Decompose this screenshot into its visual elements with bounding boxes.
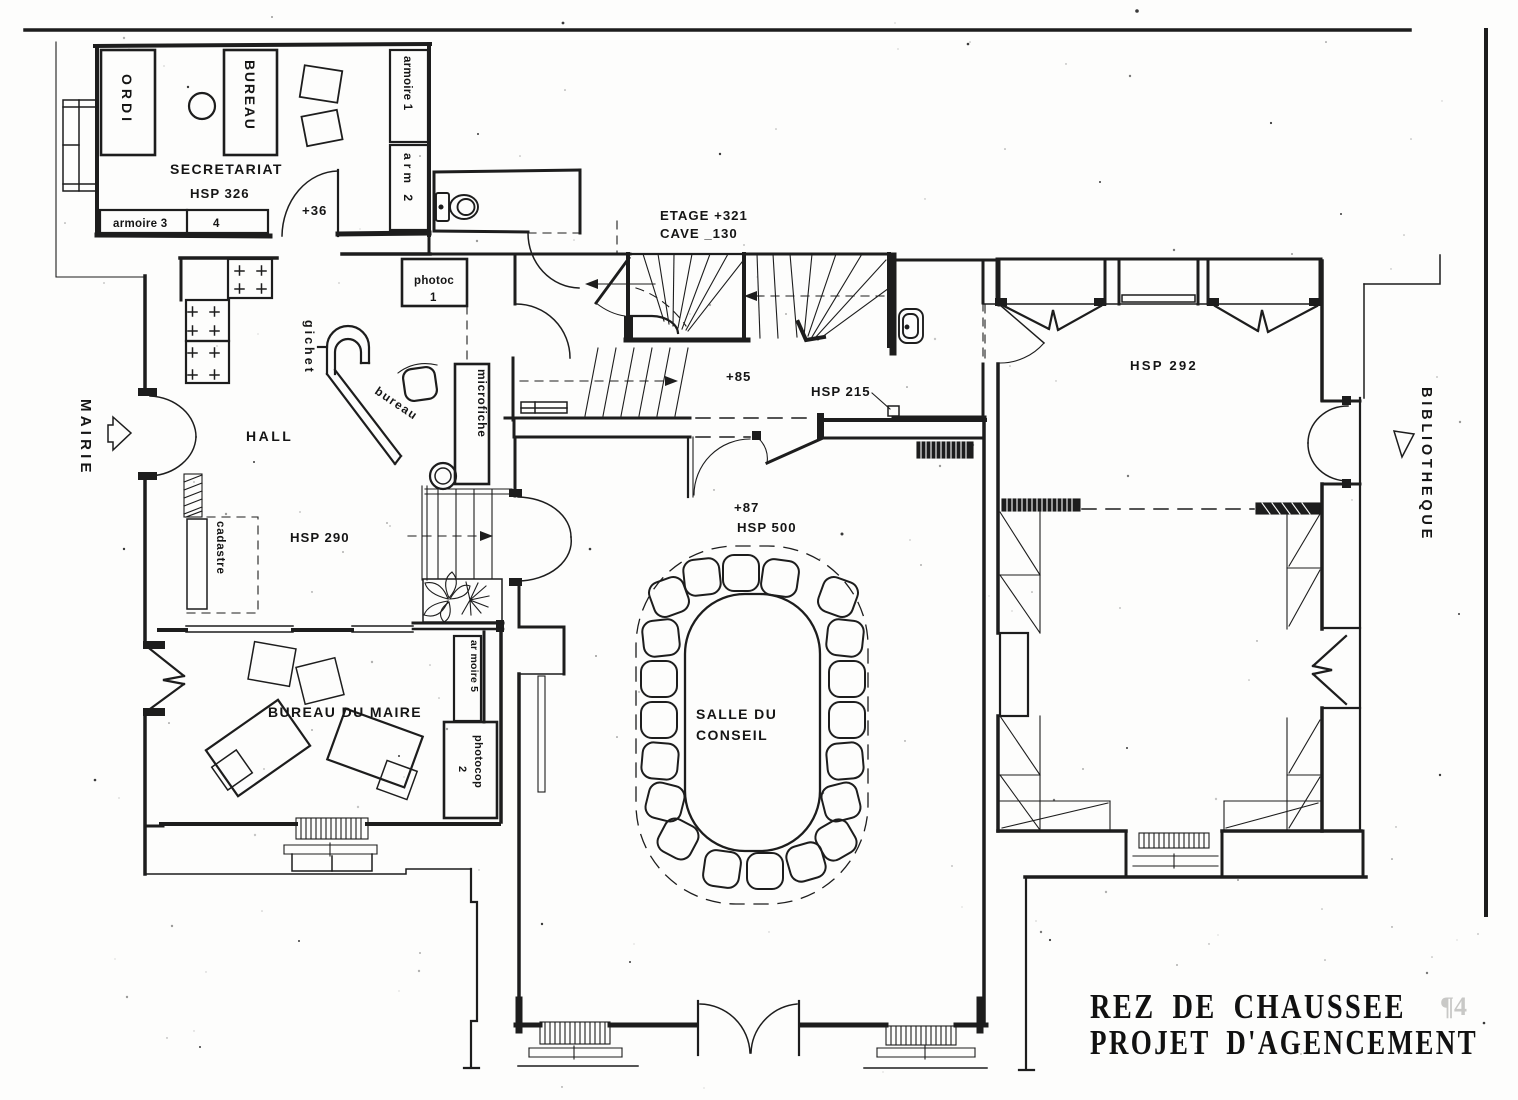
svg-text:2: 2 xyxy=(456,766,468,772)
svg-text:CONSEIL: CONSEIL xyxy=(696,727,768,743)
svg-text:4: 4 xyxy=(213,218,220,230)
svg-text:BIBLIOTHEQUE: BIBLIOTHEQUE xyxy=(1418,387,1434,542)
svg-text:HSP 292: HSP 292 xyxy=(1130,358,1198,373)
svg-text:HSP 500: HSP 500 xyxy=(737,520,797,535)
svg-text:gichet: gichet xyxy=(302,320,316,375)
svg-text:+36: +36 xyxy=(302,203,327,218)
svg-text:HSP 326: HSP 326 xyxy=(190,186,250,201)
svg-text:REZ DE CHAUSSEE: REZ DE CHAUSSEE xyxy=(1090,987,1406,1026)
svg-text:PROJET D'AGENCEMENT: PROJET D'AGENCEMENT xyxy=(1090,1023,1478,1062)
svg-text:HSP 215: HSP 215 xyxy=(811,384,871,399)
svg-text:ar moire 5: ar moire 5 xyxy=(468,640,480,692)
svg-text:1: 1 xyxy=(430,292,437,304)
svg-text:cadastre: cadastre xyxy=(214,521,226,575)
svg-text:+85: +85 xyxy=(726,369,751,384)
svg-text:MAIRIE: MAIRIE xyxy=(77,399,94,477)
svg-text:CAVE _130: CAVE _130 xyxy=(660,226,738,241)
svg-text:SECRETARIAT: SECRETARIAT xyxy=(170,161,283,177)
svg-text:HSP 290: HSP 290 xyxy=(290,530,350,545)
svg-text:¶4: ¶4 xyxy=(1440,992,1467,1021)
svg-text:microfiche: microfiche xyxy=(475,369,489,438)
svg-text:bureau: bureau xyxy=(372,384,420,423)
svg-text:photocop: photocop xyxy=(472,735,484,788)
svg-text:ETAGE +321: ETAGE +321 xyxy=(660,208,748,223)
svg-text:armoire 3: armoire 3 xyxy=(113,218,167,230)
svg-text:HALL: HALL xyxy=(246,428,293,444)
svg-text:SALLE DU: SALLE DU xyxy=(696,706,777,722)
svg-text:photoc: photoc xyxy=(414,275,454,287)
svg-text:BUREAU: BUREAU xyxy=(242,60,258,131)
svg-text:arm 2: arm 2 xyxy=(401,153,415,205)
svg-text:+87: +87 xyxy=(734,500,759,515)
svg-text:ORDI: ORDI xyxy=(119,74,135,125)
svg-text:BUREAU DU MAIRE: BUREAU DU MAIRE xyxy=(268,704,422,720)
svg-text:armoire 1: armoire 1 xyxy=(401,56,413,111)
